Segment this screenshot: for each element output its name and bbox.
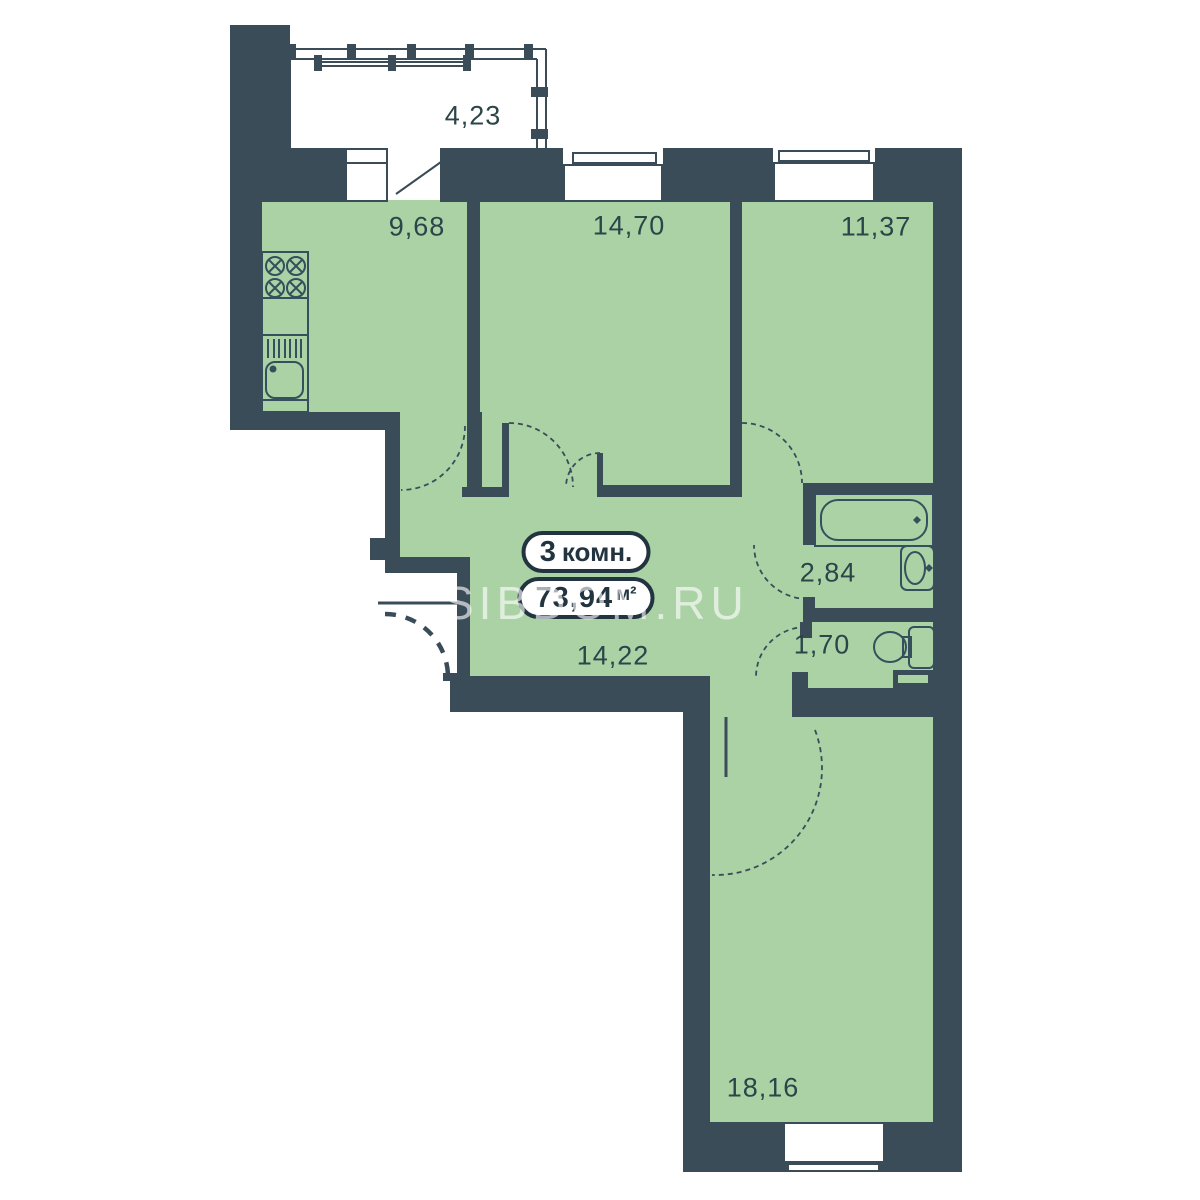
room-area-label-wc: 1,70 [794, 630, 851, 661]
balcony-door-leaf [396, 157, 448, 194]
rooms-count-label: комн. [562, 537, 632, 568]
room-area-label-kitchen: 9,68 [389, 212, 446, 243]
room-area-label-living-room: 18,16 [727, 1073, 800, 1104]
entrance-door-swing-arc [385, 614, 448, 677]
rooms-count-value: 3 [540, 536, 557, 569]
room-area-label-bathroom: 2,84 [800, 558, 857, 589]
rooms-count-pill: 3 комн. [522, 531, 651, 573]
room-area-label-bedroom-mid: 14,70 [593, 211, 666, 242]
stove-icon [262, 252, 308, 412]
toilet-icon [874, 627, 934, 668]
washbasin-icon [901, 546, 934, 590]
bathtub-icon [815, 494, 933, 546]
kitchen-sink-icon [266, 339, 303, 398]
room-area-label-balcony: 4,23 [445, 101, 502, 132]
room-area-label-bedroom-right: 11,37 [841, 212, 912, 243]
floor-plan: 4,23 9,68 14,70 11,37 2,84 1,70 14,22 18… [0, 0, 1200, 1200]
balcony-glazing-icon [288, 45, 547, 149]
sibdom-watermark: SIBDOM.RU [443, 576, 749, 630]
room-area-label-hallway: 14,22 [577, 641, 650, 672]
